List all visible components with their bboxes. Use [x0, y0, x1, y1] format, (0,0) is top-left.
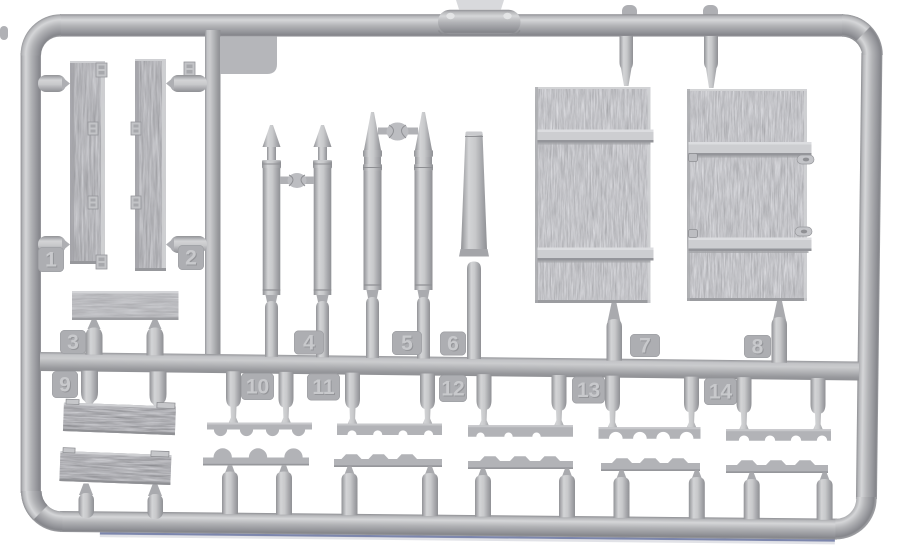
svg-text:11: 11 — [312, 376, 335, 399]
svg-text:12: 12 — [441, 378, 464, 401]
svg-text:9: 9 — [59, 374, 71, 397]
svg-text:4: 4 — [303, 332, 315, 355]
svg-text:3: 3 — [67, 331, 79, 354]
svg-text:6: 6 — [447, 333, 459, 356]
svg-text:13: 13 — [577, 379, 600, 402]
svg-text:7: 7 — [639, 335, 651, 358]
svg-text:5: 5 — [401, 332, 413, 355]
svg-text:1: 1 — [45, 249, 57, 272]
svg-text:10: 10 — [246, 376, 269, 399]
svg-text:8: 8 — [752, 336, 764, 359]
svg-text:2: 2 — [185, 247, 197, 270]
svg-text:14: 14 — [709, 381, 733, 404]
